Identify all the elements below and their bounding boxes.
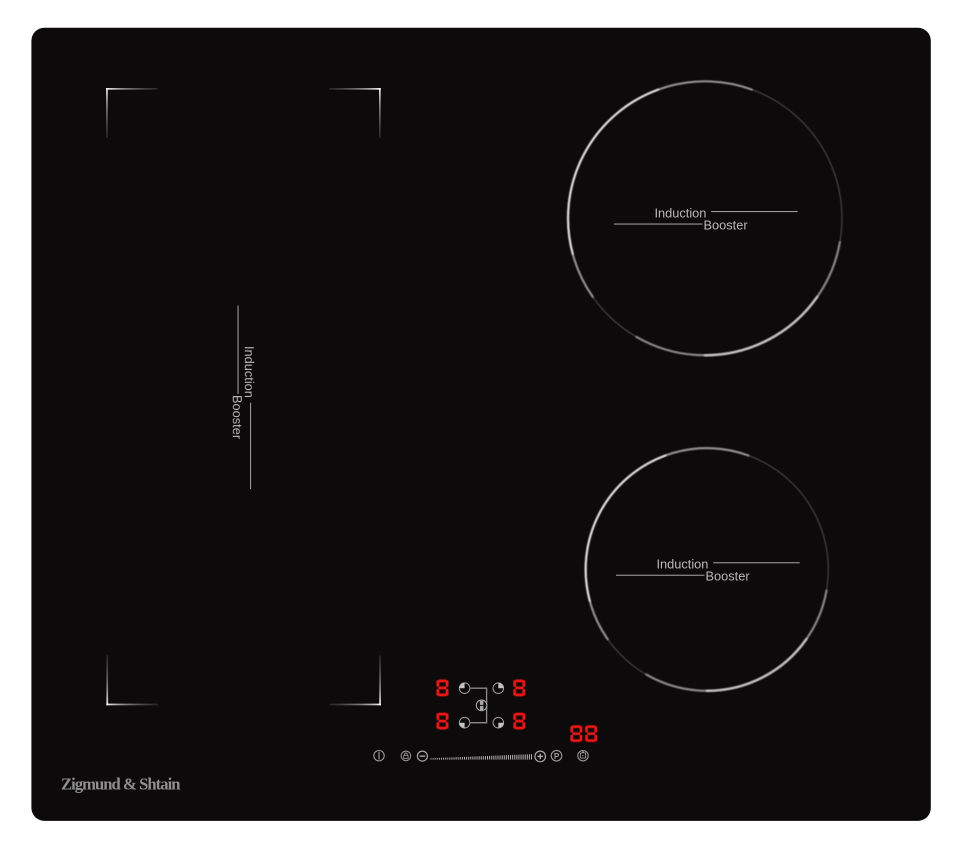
- svg-text:Booster: Booster: [704, 217, 749, 232]
- svg-text:Induction: Induction: [654, 205, 706, 220]
- svg-text:Induction: Induction: [656, 557, 708, 572]
- svg-text:P: P: [554, 752, 560, 761]
- svg-text:Booster: Booster: [230, 395, 245, 440]
- svg-text:Induction: Induction: [242, 346, 257, 398]
- svg-text:Zigmund & Shtain: Zigmund & Shtain: [61, 775, 180, 794]
- svg-text:Booster: Booster: [706, 569, 751, 584]
